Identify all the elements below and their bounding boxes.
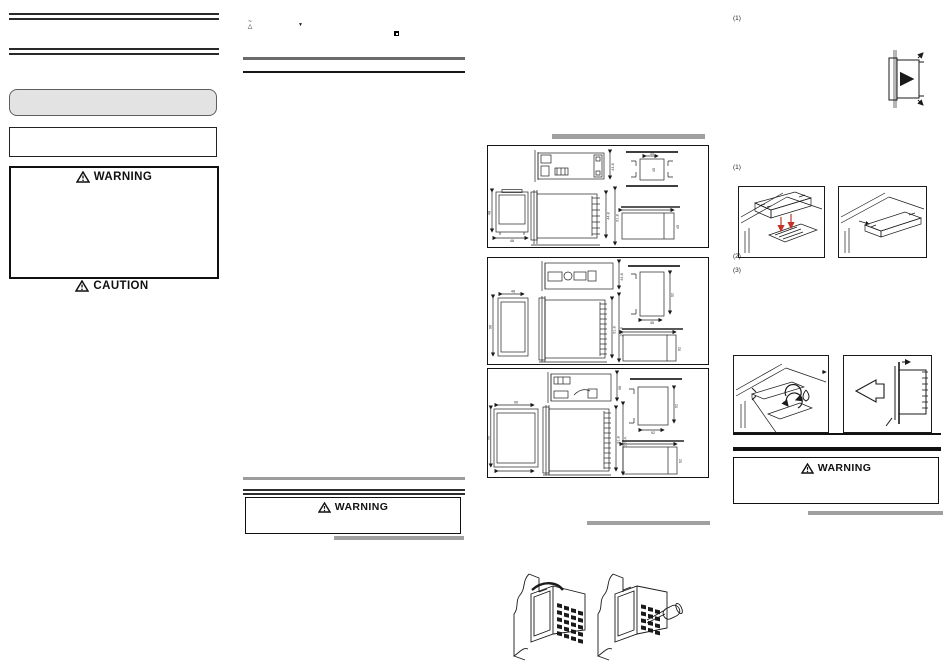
removal-step-figure-pullout [843,355,932,433]
svg-text:45: 45 [650,321,654,325]
warning-box-right: WARNING [733,457,939,504]
subtitle-box [9,127,217,157]
caution-title: CAUTION [93,280,148,292]
section-heading-bar [587,521,710,525]
panel-device-lever-drawing [495,568,595,665]
step-label-4: (3) [733,267,741,274]
mounting-step-figure-insert [738,186,825,258]
svg-text:92: 92 [671,293,675,297]
svg-text:44.8: 44.8 [607,212,611,219]
dimension-panel-1: 44.8 48 48 44.8 91.8 45 45 45 [487,145,709,248]
svg-text:107.4: 107.4 [620,327,624,337]
svg-text:96: 96 [488,436,491,440]
svg-text:44.8: 44.8 [611,163,615,170]
pull-out-side-view-drawing [844,356,931,432]
panel-mount-side-view [876,48,928,110]
mounting-step-figure-seated [838,186,927,258]
title-banner-box [9,89,217,116]
ac-symbol-icon: ~ △ [245,20,255,30]
svg-text:96: 96 [514,401,518,405]
warning-title: WARNING [335,501,389,513]
rotate-lever-drawing [734,356,828,432]
svg-text:91.8: 91.8 [613,326,617,333]
mark-symbol-icon: ▼ [298,22,303,28]
svg-text:91.8: 91.8 [616,214,620,221]
svg-text:107.4: 107.4 [624,437,628,447]
svg-text:96: 96 [489,325,493,329]
header-rule-second [9,48,219,55]
terminal-removal-figure-1 [495,568,595,665]
mid-bottom-rule-gray [243,477,465,480]
insert-into-cutout-drawing [739,187,824,257]
warning-title: WARNING [94,171,152,183]
caution-heading: CAUTION [9,280,215,292]
step-label-3: (2) [733,253,741,260]
document-page: WARNING CAUTION ~ △ ▼ WARNING [0,0,950,667]
svg-text:96: 96 [618,386,622,390]
mount-side-view-drawing [876,48,928,110]
svg-text:48: 48 [488,211,492,215]
dimension-drawing-96x96: 96 96 96 91.8 107.4 92 92 92 [488,369,708,477]
svg-text:48: 48 [510,239,514,243]
mid-bottom-rule-dark [243,489,465,495]
terminal-removal-figure-2 [583,568,688,665]
step-label-2: (1) [733,164,741,171]
warning-box-left: WARNING [9,166,219,279]
square-mark-icon [394,23,399,41]
seated-in-cutout-drawing [839,187,926,257]
svg-text:91.8: 91.8 [617,436,621,443]
caution-icon [75,280,89,292]
svg-text:48: 48 [511,290,515,294]
dimension-drawing-48x96: 44.8 48 96 91.8 107.4 45 92 92 [488,258,708,364]
svg-text:45: 45 [652,168,656,172]
warning-heading: WARNING [246,501,460,513]
right-rule-top [733,433,941,435]
dimension-panel-3: 96 96 96 91.8 107.4 92 92 92 [487,368,709,478]
warning-icon [318,502,331,513]
svg-text:44.8: 44.8 [620,273,624,280]
warning-box-middle: WARNING [245,497,461,534]
section-heading-bar [552,134,705,139]
svg-text:92: 92 [651,431,655,435]
warning-heading: WARNING [11,171,217,183]
mid-rule-gray [243,57,465,60]
warning-icon [801,463,814,474]
warning-title: WARNING [818,462,872,474]
panel-device-screwdriver-drawing [583,568,688,665]
svg-text:45: 45 [676,225,680,229]
dimension-drawing-48x48: 44.8 48 48 44.8 91.8 45 45 45 [488,146,708,247]
dimension-panel-2: 44.8 48 96 91.8 107.4 45 92 92 [487,257,709,365]
mid-rule-black [243,71,465,73]
section-heading-bar [808,511,943,515]
svg-text:92: 92 [679,459,683,463]
svg-text:45: 45 [650,152,654,156]
section-heading-bar [334,536,464,540]
svg-text:92: 92 [675,404,679,408]
header-rule-top [9,13,219,20]
step-label-1: (1) [733,15,741,22]
right-rule-bottom [733,447,941,451]
svg-text:92: 92 [678,347,682,351]
removal-step-figure-rotate [733,355,829,433]
warning-icon [76,171,90,183]
warning-heading: WARNING [734,462,938,474]
